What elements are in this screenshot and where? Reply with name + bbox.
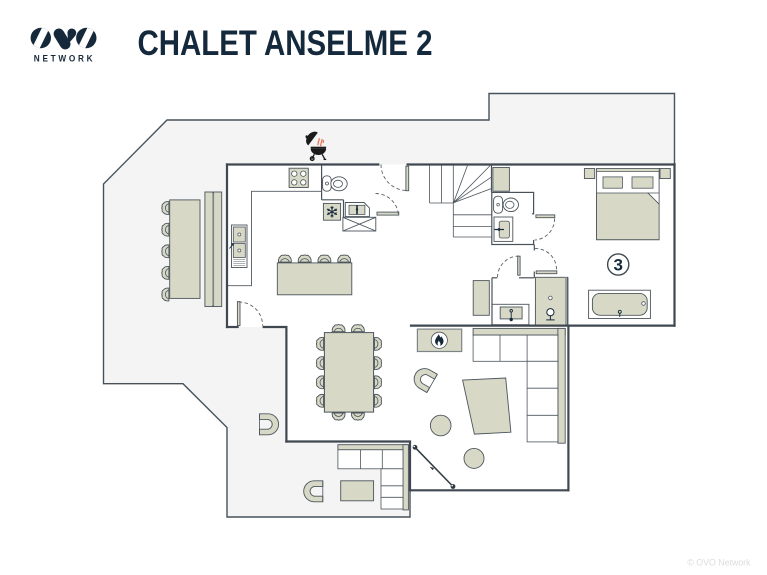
svg-text:CHALET ANSELME 2: CHALET ANSELME 2 [138,23,433,63]
svg-text:© OVO Network: © OVO Network [687,558,751,568]
svg-text:NETWORK: NETWORK [34,54,96,64]
svg-text:3: 3 [613,256,622,275]
